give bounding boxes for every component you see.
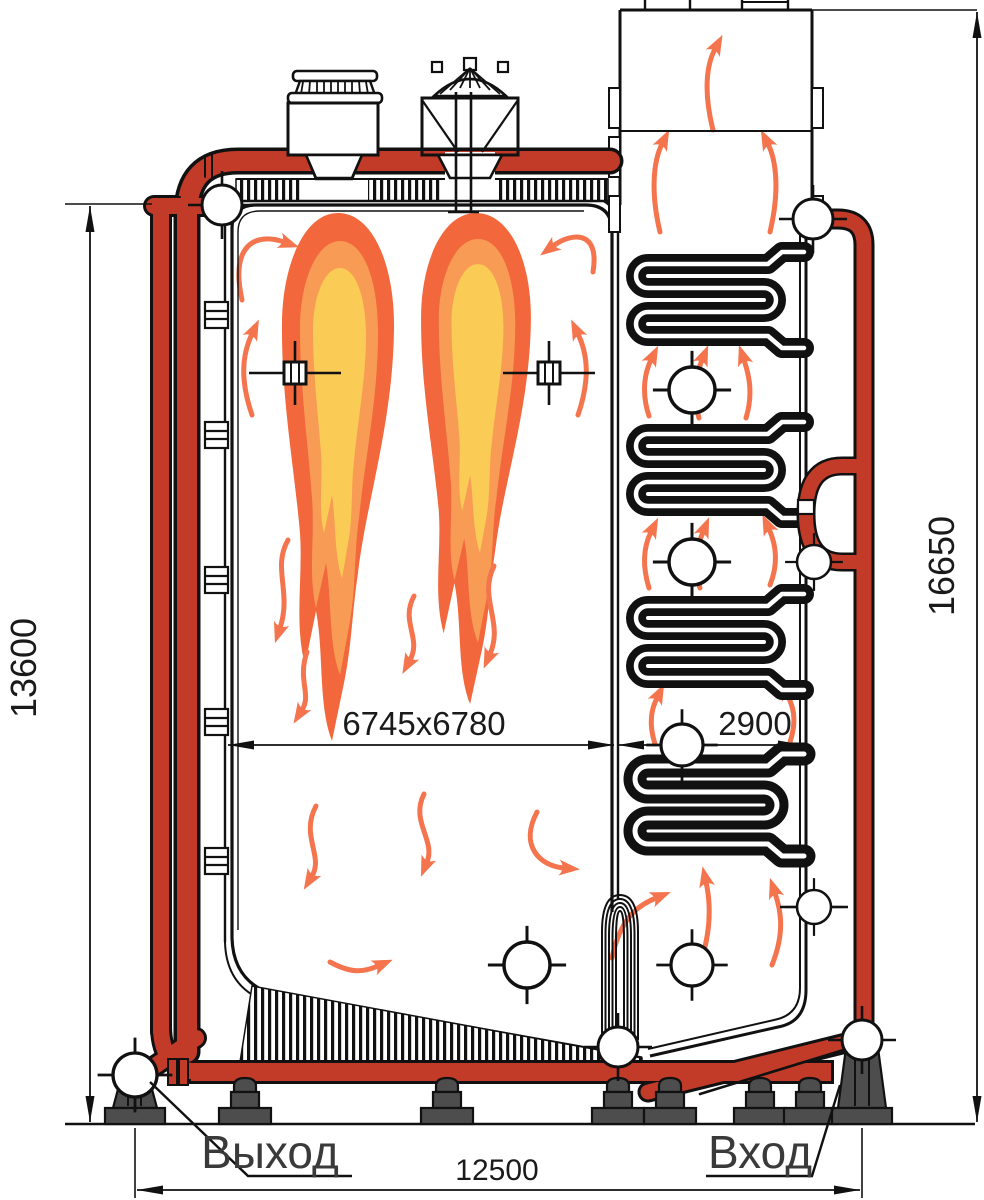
dim-total-height: 16650 [921, 516, 962, 616]
dim-shaft-width: 2900 [718, 705, 791, 742]
dim-furnace-size: 6745x6780 [342, 705, 505, 742]
foot [734, 1078, 786, 1124]
furnace-flames [282, 213, 531, 741]
drawing-canvas: 13600 16650 6745x6780 2900 12500 Выход В… [0, 0, 984, 1200]
inlet-label: Вход [708, 1126, 812, 1178]
convective-coil-banks [635, 252, 804, 856]
dim-furnace-height: 13600 [3, 618, 44, 718]
rear-screen-tubes [602, 895, 638, 1040]
outlet-label: Выход [201, 1126, 339, 1178]
foot [421, 1078, 473, 1124]
foot [784, 1078, 836, 1124]
dim-total-width: 12500 [455, 1154, 538, 1187]
foot [219, 1078, 271, 1124]
foot [592, 1078, 644, 1124]
boiler-drawing: 13600 16650 6745x6780 2900 12500 Выход В… [0, 0, 984, 1200]
